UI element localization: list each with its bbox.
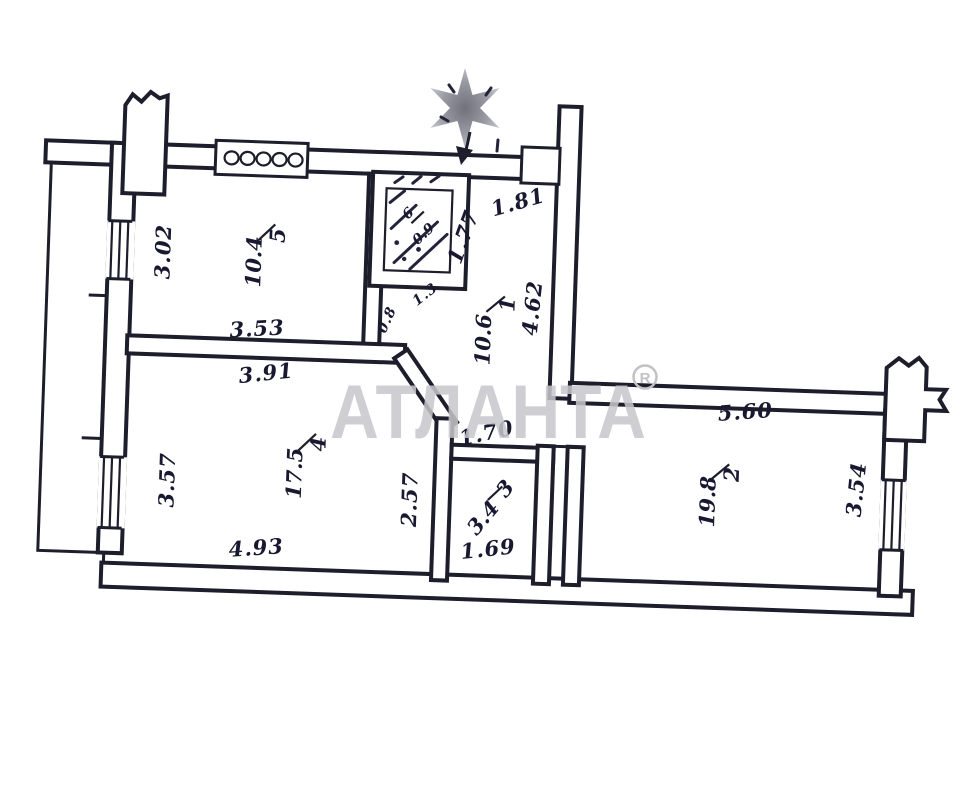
- tick-mark-left-lower: [82, 438, 102, 439]
- wall-corridor-left: [533, 446, 554, 584]
- dim-3-02: 3.02: [149, 224, 176, 280]
- svg-text:17.5: 17.5: [281, 447, 308, 499]
- svg-text:10.4: 10.4: [240, 236, 267, 288]
- svg-text:5: 5: [265, 228, 290, 243]
- svg-text:1: 1: [494, 297, 519, 312]
- room-label-4: 17.5 4: [281, 433, 331, 500]
- floor-plan-drawing: 3.02 3.53 3.91 3.57 4.93 2.57 1.3 0.8 1.…: [0, 0, 979, 800]
- room-label-3-bath: 3.4 3: [461, 473, 520, 540]
- svg-text:4: 4: [305, 436, 330, 451]
- dim-3-57: 3.57: [153, 452, 180, 508]
- room-label-2: 19.8 2: [694, 463, 744, 528]
- north-star-icon: [430, 68, 499, 165]
- pillar-top-left: [122, 91, 168, 194]
- dim-2-57: 2.57: [396, 471, 423, 528]
- registered-mark-letter: R: [640, 370, 651, 387]
- dim-5-60: 5.60: [717, 397, 774, 426]
- plan-geometry: 3.02 3.53 3.91 3.57 4.93 2.57 1.3 0.8 1.…: [31, 88, 957, 615]
- tick-mark-left-upper: [89, 295, 107, 296]
- svg-text:10.6: 10.6: [470, 313, 497, 365]
- svg-text:19.8: 19.8: [694, 475, 721, 527]
- svg-text:2: 2: [719, 467, 745, 483]
- window-room5: [105, 221, 135, 280]
- room-label-5: 10.4 5: [240, 223, 290, 288]
- watermark-text: АТЛАНТА: [330, 370, 646, 455]
- pillar-top-right: [884, 357, 948, 442]
- exterior-wall-bottom: [101, 563, 913, 615]
- dim-3-53: 3.53: [229, 314, 285, 342]
- lintel-detail: [215, 140, 308, 177]
- dim-4-62: 4.62: [517, 279, 548, 336]
- window-room4: [97, 456, 127, 528]
- dim-1-69: 1.69: [459, 533, 516, 564]
- wall-niche: [521, 147, 560, 184]
- wall-room2-left: [563, 447, 584, 585]
- room-label-1-hall: 10.6 1: [470, 295, 520, 366]
- window-room2: [878, 480, 906, 551]
- dim-3-54: 3.54: [841, 461, 872, 518]
- svg-text:3.4: 3.4: [461, 495, 504, 539]
- dim-3-91: 3.91: [237, 357, 294, 388]
- watermark: АТЛАНТА R: [330, 366, 657, 456]
- dim-1-81: 1.81: [488, 182, 548, 221]
- dim-4-93: 4.93: [228, 533, 285, 562]
- svg-text:3: 3: [491, 475, 520, 502]
- floor-plan-page: 3.02 3.53 3.91 3.57 4.93 2.57 1.3 0.8 1.…: [0, 0, 979, 800]
